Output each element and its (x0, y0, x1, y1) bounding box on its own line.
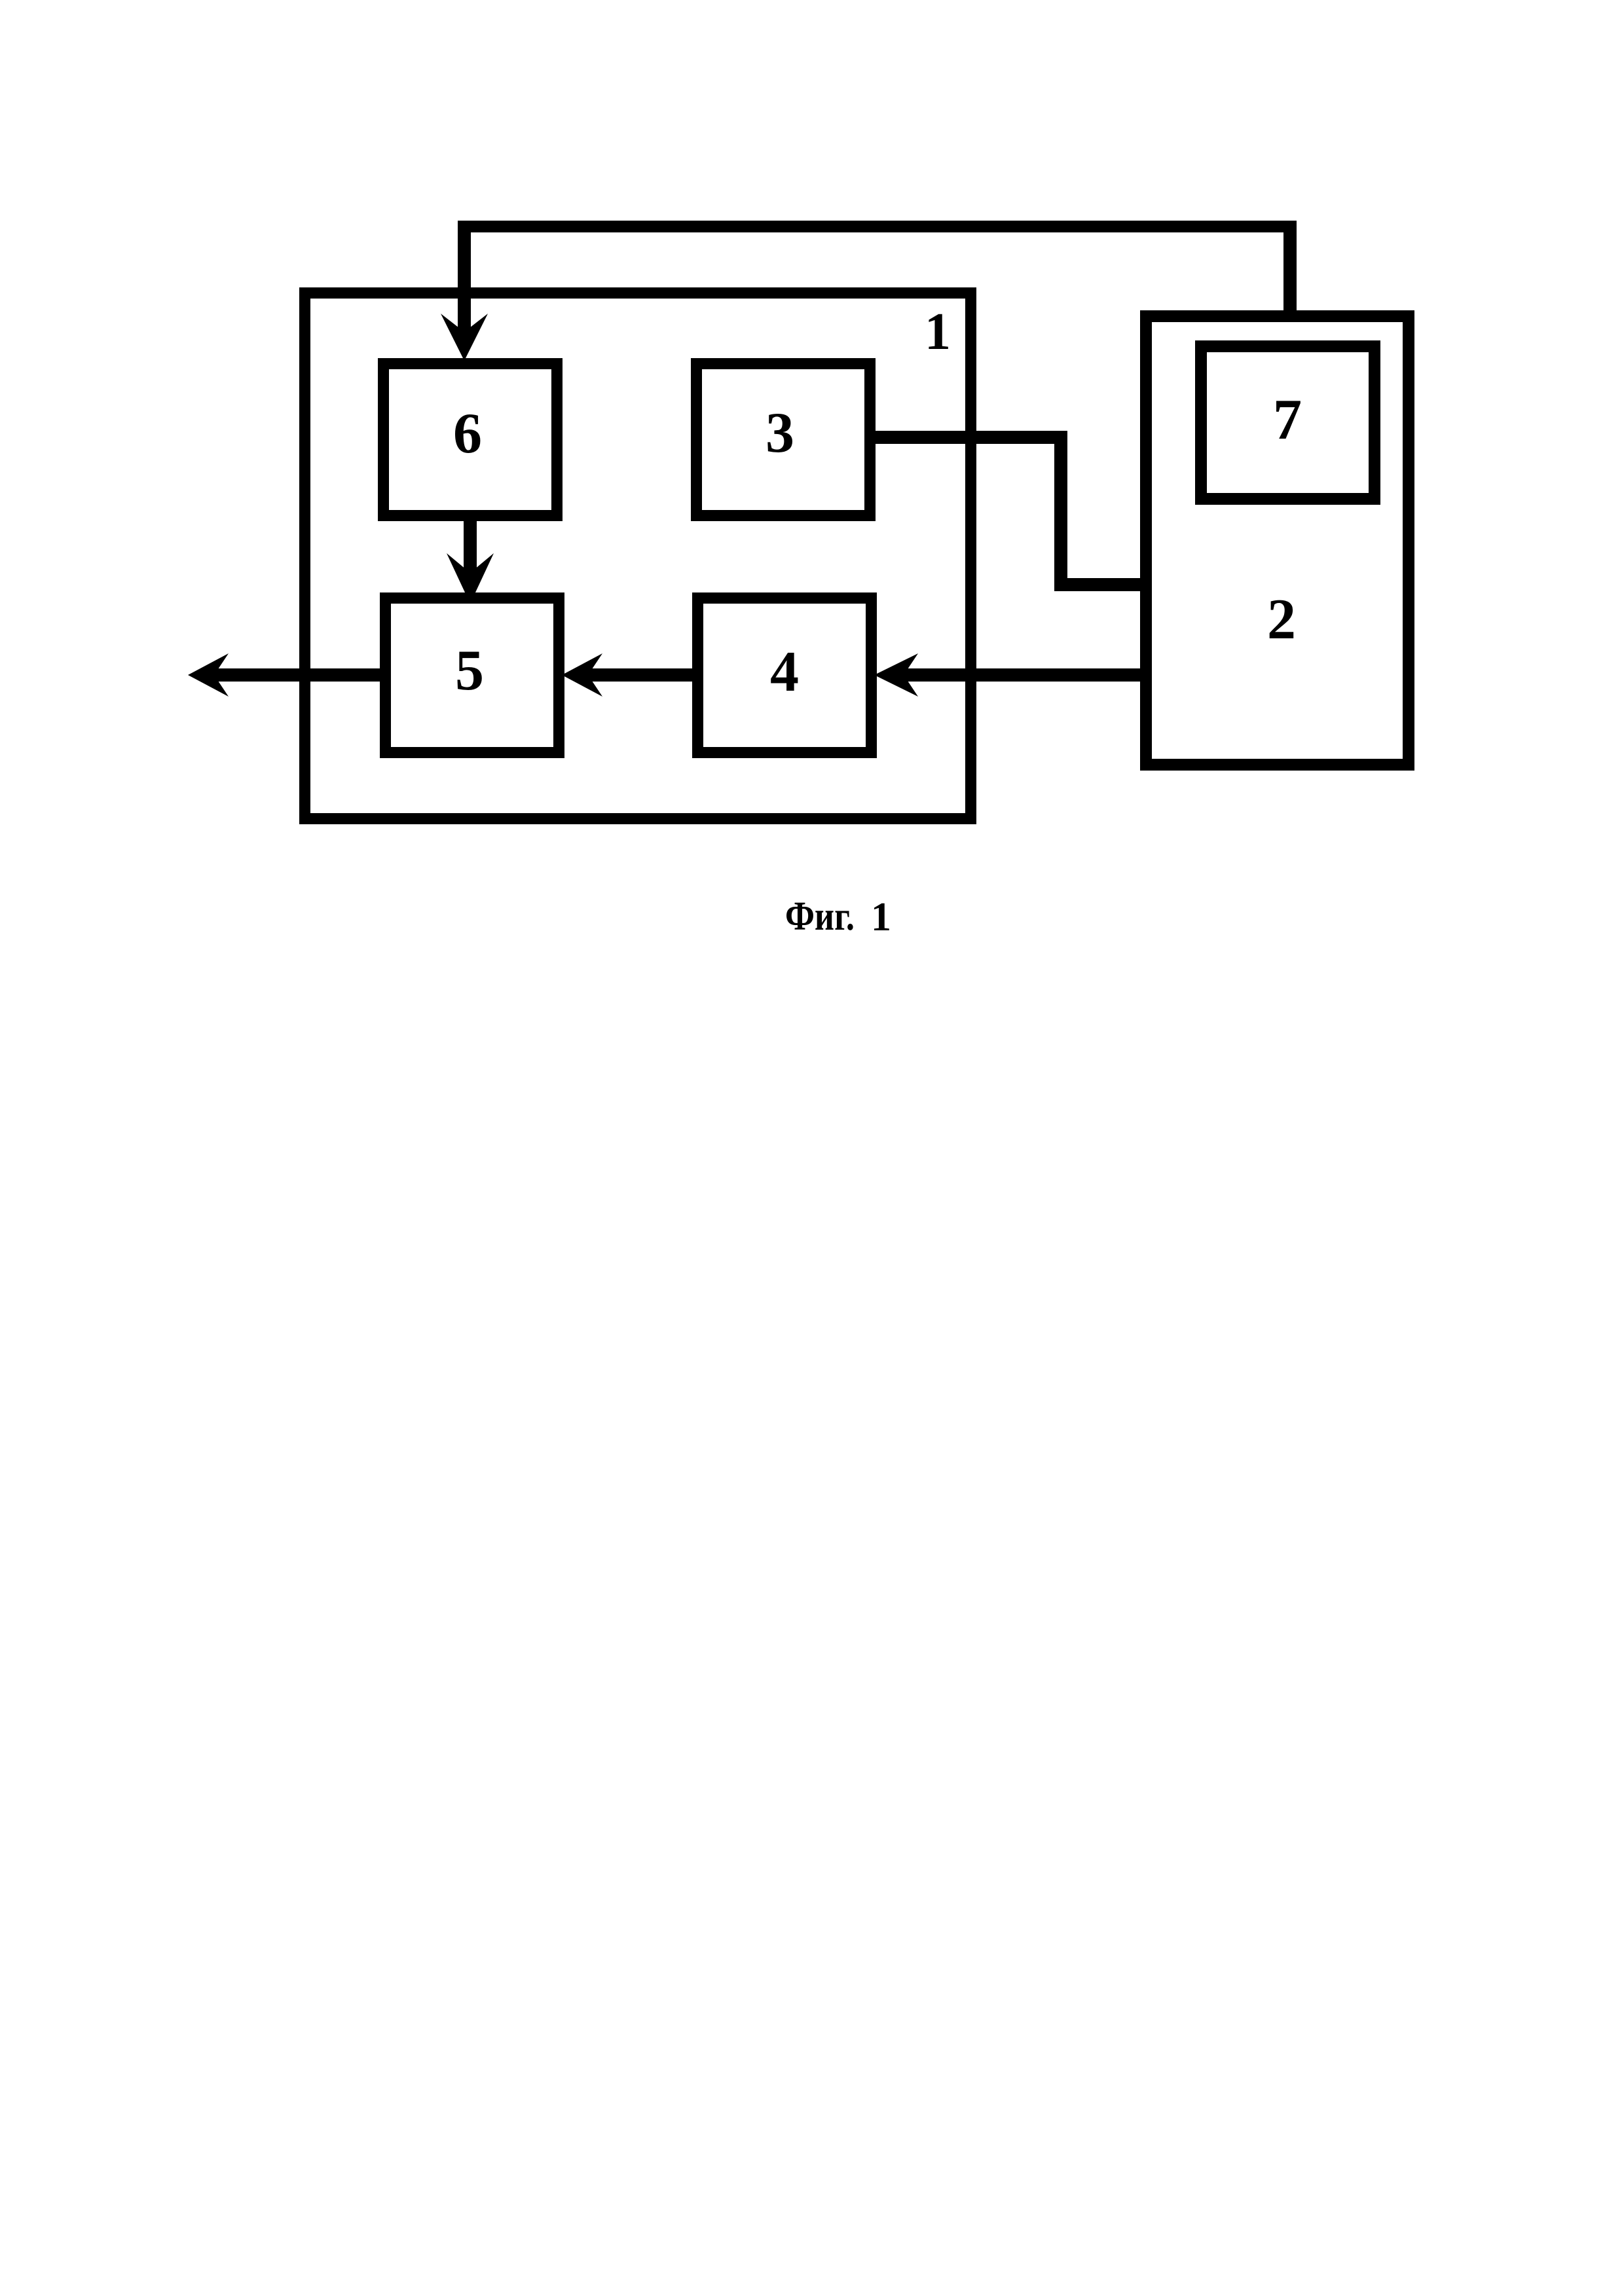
svg-text:6: 6 (453, 402, 482, 465)
svg-text:7: 7 (1273, 388, 1302, 452)
svg-text:1: 1 (871, 895, 891, 939)
svg-text:5: 5 (455, 639, 484, 702)
svg-text:2: 2 (1267, 588, 1296, 651)
svg-text:1: 1 (925, 303, 951, 361)
svg-text:4: 4 (770, 640, 799, 704)
svg-text:Фиг.: Фиг. (785, 894, 855, 939)
svg-text:3: 3 (766, 401, 794, 465)
